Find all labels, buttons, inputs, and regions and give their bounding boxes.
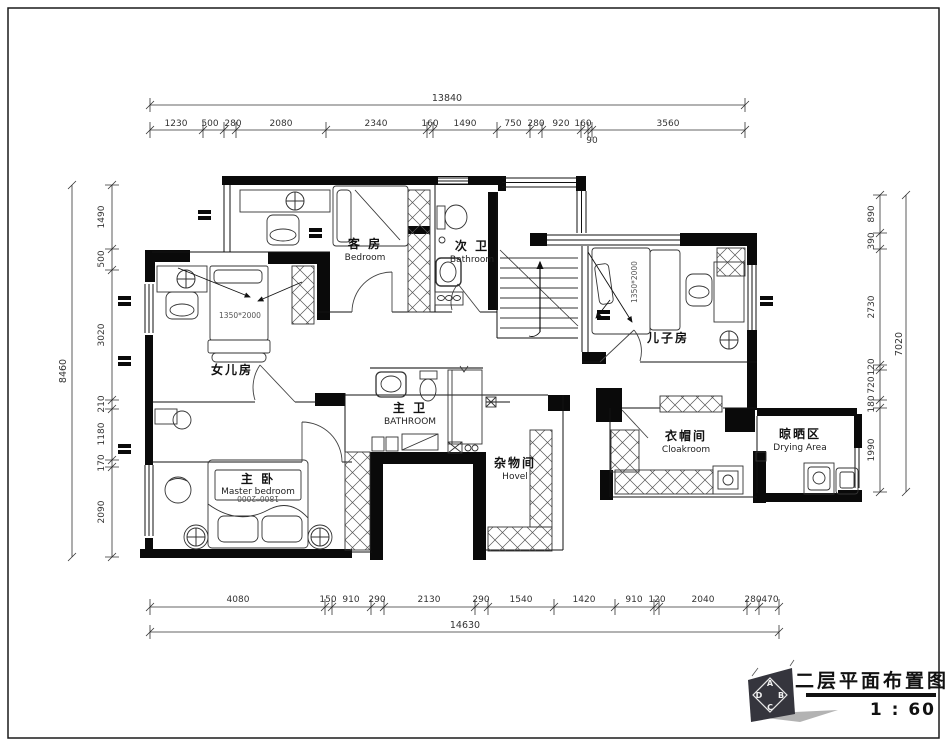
dim-top-2: 280 — [224, 119, 241, 129]
dim-bottom-total: 14630 — [450, 620, 480, 631]
logo-letter-left: D — [756, 691, 763, 700]
dim-top-0: 1230 — [165, 119, 188, 129]
dim-bottom-9: 120 — [648, 595, 665, 605]
dim-top-8: 280 — [527, 119, 544, 129]
label-hovel-cn: 杂物间 — [494, 455, 536, 470]
dim-left-2: 3020 — [97, 323, 107, 346]
dim-right-total: 7020 — [894, 332, 905, 356]
dim-top-7: 750 — [504, 119, 521, 129]
dim-right-1: 390 — [867, 232, 877, 249]
title-underline — [806, 693, 936, 697]
dim-right-0: 890 — [867, 205, 877, 222]
label-guest-cn: 客 房 — [347, 236, 382, 251]
dim-top-4: 2340 — [365, 119, 388, 129]
dim-bottom-5: 290 — [472, 595, 489, 605]
label-son-cn: 儿子房 — [646, 330, 689, 345]
label-bath2-en: Bathroom — [450, 255, 494, 265]
logo-letter-top: A — [767, 679, 774, 688]
label-daughter-bed: 1350*2000 — [219, 311, 261, 320]
dim-bottom-12: 470 — [761, 595, 778, 605]
drawing-scale: 1 : 60 — [870, 700, 936, 720]
dim-top-3: 2080 — [270, 119, 293, 129]
dim-bottom-1: 150 — [319, 595, 336, 605]
dim-bottom-2: 910 — [342, 595, 359, 605]
dim-right-4: 720 — [867, 376, 877, 393]
title-block: A D B C 二层平面布置图 1 : 60 — [748, 660, 947, 722]
dim-bottom-7: 1420 — [573, 595, 596, 605]
dimension-chain-right: 7020 890 390 2730 120 720 180 1990 — [867, 191, 910, 496]
furniture-cloak-drying — [713, 463, 858, 494]
dim-bottom-6: 1540 — [510, 595, 533, 605]
label-master-cn: 主 卧 — [241, 471, 275, 486]
dim-right-5: 180 — [867, 395, 877, 412]
label-son-bed: 1350*2000 — [630, 261, 639, 303]
dim-left-3: 210 — [97, 395, 107, 412]
label-cloak-cn: 衣帽间 — [665, 428, 707, 443]
dim-top-total: 13840 — [432, 93, 462, 104]
label-bath2-cn: 次 卫 — [455, 238, 489, 253]
logo-letter-right: B — [778, 691, 784, 700]
dim-top-11: 90 — [586, 136, 598, 146]
dim-top-10: 160 — [574, 119, 591, 129]
dim-top-1: 500 — [201, 119, 218, 129]
dim-top-12: 3560 — [657, 119, 680, 129]
drawing-title: 二层平面布置图 — [795, 669, 947, 692]
dim-right-2: 2730 — [867, 295, 877, 318]
dimension-chain-left: 8460 1490 500 3020 210 1180 170 2090 — [58, 181, 119, 561]
logo-letter-bottom: C — [767, 703, 773, 712]
dim-top-5: 160 — [421, 119, 438, 129]
label-master-bath-cn: 主 卫 — [393, 400, 427, 415]
furniture-guest-room — [240, 186, 408, 246]
floorplan-drawing: 13840 1230 500 280 2080 2340 160 1490 75… — [0, 0, 947, 746]
dim-left-6: 2090 — [97, 500, 107, 523]
label-drying-en: Drying Area — [773, 443, 826, 453]
dim-bottom-11: 280 — [744, 595, 761, 605]
dim-bottom-4: 2130 — [418, 595, 441, 605]
dim-left-total: 8460 — [58, 359, 69, 383]
dim-bottom-3: 290 — [368, 595, 385, 605]
dimension-chain-bottom: 14630 4080 150 910 290 2130 290 1540 142… — [146, 595, 783, 639]
label-cloak-en: Cloakroom — [662, 445, 710, 455]
dim-left-4: 1180 — [97, 422, 107, 445]
dim-left-5: 170 — [97, 454, 107, 471]
label-master-bath-en: BATHROOM — [384, 417, 436, 427]
label-guest-en: Bedroom — [345, 253, 386, 263]
label-daughter-cn: 女儿房 — [211, 362, 253, 377]
label-master-bed: 1800*2000 — [237, 494, 279, 503]
dim-bottom-8: 910 — [625, 595, 642, 605]
dim-bottom-10: 2040 — [692, 595, 715, 605]
label-drying-cn: 晾晒区 — [779, 426, 821, 441]
dim-left-1: 500 — [97, 250, 107, 267]
dim-top-6: 1490 — [454, 119, 477, 129]
stairs — [500, 250, 578, 337]
dim-right-3: 120 — [867, 358, 877, 375]
dim-top-9: 920 — [552, 119, 569, 129]
dim-bottom-0: 4080 — [227, 595, 250, 605]
label-hovel-en: Hovel — [502, 472, 528, 482]
dim-right-6: 1990 — [867, 438, 877, 461]
dimension-chain-top: 13840 1230 500 280 2080 2340 160 1490 75… — [146, 93, 749, 146]
dim-left-0: 1490 — [97, 205, 107, 228]
furniture-daughter-room — [155, 266, 302, 429]
drawing-sheet: 13840 1230 500 280 2080 2340 160 1490 75… — [0, 0, 947, 746]
